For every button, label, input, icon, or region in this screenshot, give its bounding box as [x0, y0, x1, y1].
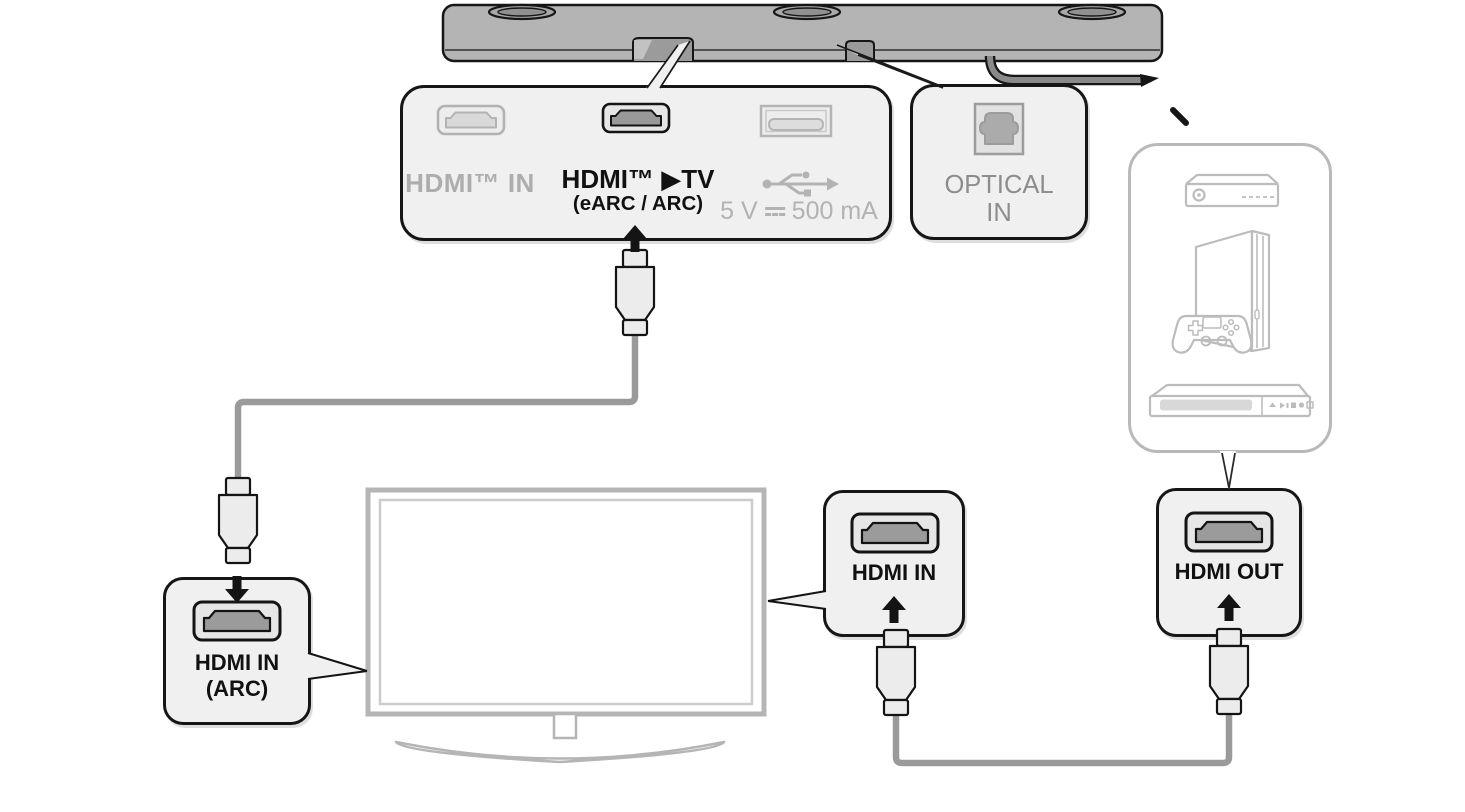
- soundbar: [443, 5, 1162, 61]
- tv-stand-base: [396, 742, 724, 762]
- callout-devices-to-hdmi-out: [1220, 451, 1236, 489]
- dc-power-icon: [765, 204, 785, 219]
- external-devices-box: [1128, 143, 1332, 453]
- tv: [368, 490, 764, 762]
- tv-hdmi-in-arc-label: HDMI IN(ARC): [195, 650, 279, 702]
- callout-notch-to-optical-panel: [837, 45, 943, 88]
- cord-tip: [1140, 74, 1159, 87]
- callout-arc-to-tv: [308, 653, 368, 679]
- soundbar-connector-recess: [633, 38, 693, 61]
- connection-diagram: HDMI™ IN HDMI™ ▶TV (eARC / ARC) 5 V500 m…: [0, 0, 1465, 812]
- tv-stand-neck: [554, 714, 576, 738]
- hdmi-plug-icon: [616, 250, 654, 335]
- usb-power-label: 5 V500 mA: [720, 197, 878, 226]
- optical-in-label: OPTICALIN: [944, 171, 1053, 227]
- soundbar-connector-recess: [846, 41, 874, 61]
- hdmi-plug-icon: [219, 478, 257, 563]
- callout-hdmi-in-to-tv: [767, 591, 826, 609]
- usb-power-prefix: 5 V: [720, 197, 758, 225]
- earc-arc-sublabel: (eARC / ARC): [573, 192, 703, 216]
- hdmi-cable-tv-to-device: [896, 713, 1229, 763]
- hdmi-plug-icon: [1210, 629, 1248, 714]
- hdmi-in-port-label: HDMI™ IN: [405, 168, 535, 199]
- usb-power-suffix: 500 mA: [792, 197, 878, 225]
- hdmi-tv-port-label: HDMI™ ▶TV: [562, 164, 715, 195]
- hdmi-plug-icon: [877, 630, 915, 715]
- cord-continuation-dash: [1173, 110, 1186, 123]
- callout-notch-to-main-panel: [646, 41, 690, 88]
- soundbar-mount-hole: [489, 5, 1125, 19]
- hdmi-cable-soundbar-to-tv: [238, 322, 635, 480]
- tv-hdmi-in-label: HDMI IN: [852, 560, 936, 586]
- device-hdmi-out-label: HDMI OUT: [1175, 559, 1284, 585]
